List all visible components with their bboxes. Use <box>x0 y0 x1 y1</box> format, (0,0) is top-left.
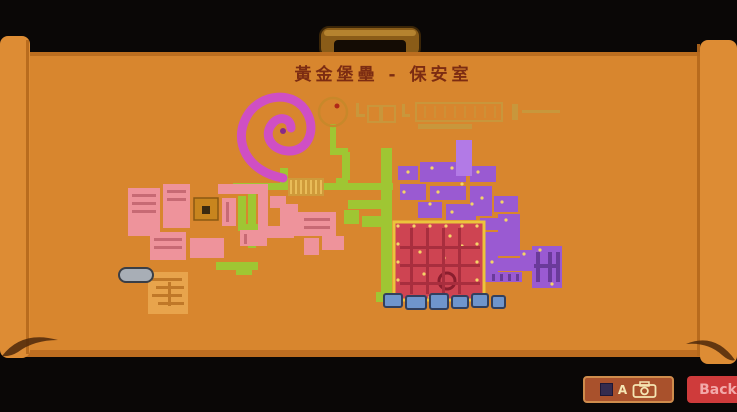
red-fortress <box>394 222 484 300</box>
key-label: A <box>618 384 627 396</box>
gamepad-key-icon <box>600 383 613 396</box>
back-button-label: Back <box>699 382 737 398</box>
gray-submarine <box>119 268 153 282</box>
camera-icon <box>632 381 657 398</box>
back-button[interactable]: Back <box>687 376 737 403</box>
purple-room-tower <box>456 140 472 176</box>
photo-mode-button[interactable]: A <box>583 376 674 403</box>
amber-room-core <box>202 206 210 214</box>
map-title: 黃金堡壘 - 保安室 <box>0 60 737 85</box>
blue-supports <box>384 294 505 309</box>
game-screen: 黃金堡壘 - 保安室 A Back <box>0 0 737 412</box>
